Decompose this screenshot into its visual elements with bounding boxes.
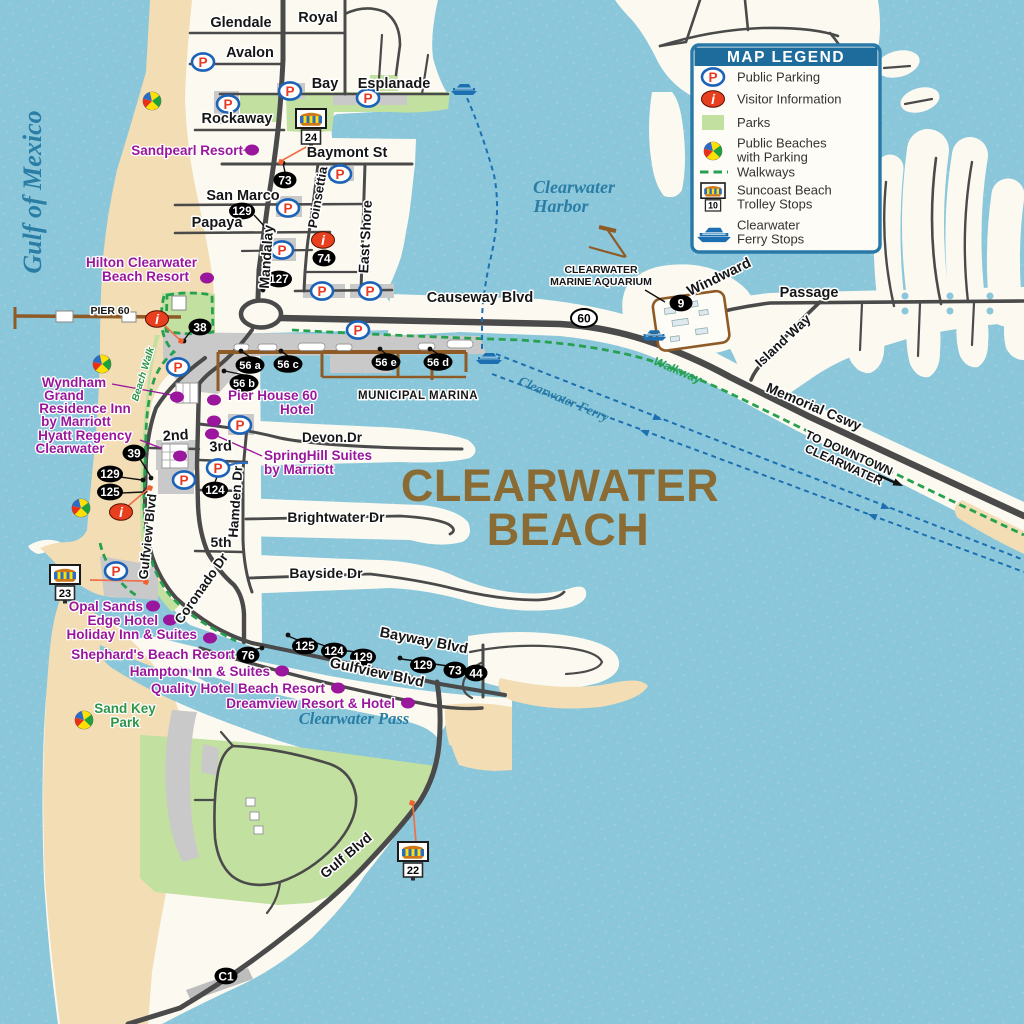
svg-text:Edge Hotel: Edge Hotel bbox=[87, 613, 158, 628]
svg-text:3rd: 3rd bbox=[209, 438, 233, 456]
svg-text:38: 38 bbox=[193, 320, 207, 334]
svg-text:Rockaway: Rockaway bbox=[202, 111, 273, 127]
svg-text:56 e: 56 e bbox=[375, 357, 396, 369]
svg-text:Public Parking: Public Parking bbox=[737, 70, 820, 85]
svg-text:125: 125 bbox=[100, 487, 120, 499]
svg-text:129: 129 bbox=[100, 469, 119, 481]
svg-text:10: 10 bbox=[708, 201, 718, 211]
svg-text:22: 22 bbox=[407, 865, 419, 877]
svg-text:Sandpearl Resort: Sandpearl Resort bbox=[131, 143, 243, 158]
svg-text:125: 125 bbox=[295, 641, 315, 653]
svg-text:Suncoast Beach: Suncoast Beach bbox=[737, 183, 832, 198]
svg-text:by Marriott: by Marriott bbox=[41, 414, 111, 429]
svg-text:Papaya: Papaya bbox=[192, 215, 244, 231]
svg-text:76: 76 bbox=[241, 648, 255, 662]
svg-text:Clearwater Pass: Clearwater Pass bbox=[299, 709, 409, 728]
svg-text:Trolley Stops: Trolley Stops bbox=[737, 197, 813, 212]
svg-text:Walkways: Walkways bbox=[737, 165, 796, 180]
svg-text:Royal: Royal bbox=[298, 10, 338, 26]
svg-text:BEACH: BEACH bbox=[487, 504, 650, 555]
svg-text:Harbor: Harbor bbox=[532, 196, 589, 216]
svg-text:MARINE AQUARIUM: MARINE AQUARIUM bbox=[550, 276, 652, 288]
svg-text:Public Beaches: Public Beaches bbox=[737, 136, 827, 151]
svg-text:44: 44 bbox=[469, 666, 483, 680]
svg-text:2nd: 2nd bbox=[162, 427, 189, 445]
svg-text:Ferry Stops: Ferry Stops bbox=[737, 232, 805, 247]
svg-text:San Marco: San Marco bbox=[206, 188, 279, 204]
svg-text:60: 60 bbox=[577, 311, 591, 325]
svg-text:73: 73 bbox=[448, 663, 462, 677]
svg-text:Hilton Clearwater: Hilton Clearwater bbox=[86, 255, 198, 270]
svg-text:Causeway Blvd: Causeway Blvd bbox=[427, 290, 533, 306]
svg-text:Baymont St: Baymont St bbox=[307, 145, 388, 161]
svg-text:PIER 60: PIER 60 bbox=[90, 305, 129, 317]
svg-text:56 c: 56 c bbox=[277, 359, 298, 371]
svg-text:Parks: Parks bbox=[737, 115, 771, 130]
svg-text:Clearwater: Clearwater bbox=[35, 441, 105, 456]
svg-text:Brightwater Dr: Brightwater Dr bbox=[287, 509, 385, 525]
svg-text:Dreamview Resort & Hotel: Dreamview Resort & Hotel bbox=[226, 696, 395, 711]
svg-text:Shephard's Beach Resort: Shephard's Beach Resort bbox=[71, 647, 235, 662]
svg-text:24: 24 bbox=[305, 132, 318, 144]
svg-text:with Parking: with Parking bbox=[736, 150, 808, 165]
svg-text:Bayside Dr: Bayside Dr bbox=[289, 565, 363, 581]
svg-text:Holiday Inn & Suites: Holiday Inn & Suites bbox=[66, 627, 197, 642]
svg-text:39: 39 bbox=[127, 446, 141, 460]
svg-text:73: 73 bbox=[278, 173, 292, 187]
svg-text:Hampton Inn & Suites: Hampton Inn & Suites bbox=[130, 664, 270, 679]
svg-text:Beach Resort: Beach Resort bbox=[102, 269, 190, 284]
svg-text:SpringHill Suites: SpringHill Suites bbox=[264, 448, 372, 463]
svg-text:Esplanade: Esplanade bbox=[358, 76, 431, 92]
svg-text:MAP LEGEND: MAP LEGEND bbox=[727, 49, 845, 66]
svg-text:Glendale: Glendale bbox=[210, 15, 271, 31]
svg-text:Devon.Dr: Devon.Dr bbox=[302, 430, 363, 445]
svg-text:56 a: 56 a bbox=[239, 360, 261, 372]
svg-text:74: 74 bbox=[317, 251, 331, 265]
svg-text:9: 9 bbox=[678, 296, 685, 310]
svg-text:Clearwater: Clearwater bbox=[737, 218, 801, 233]
svg-text:Passage: Passage bbox=[780, 285, 839, 301]
svg-text:56 d: 56 d bbox=[427, 357, 449, 369]
svg-text:Bay: Bay bbox=[312, 76, 339, 92]
svg-text:129: 129 bbox=[413, 660, 432, 672]
svg-text:MUNICIPAL MARINA: MUNICIPAL MARINA bbox=[358, 390, 478, 402]
svg-text:124: 124 bbox=[205, 485, 225, 497]
svg-text:Sand Key: Sand Key bbox=[94, 701, 156, 716]
svg-text:Pier House 60: Pier House 60 bbox=[228, 388, 317, 403]
svg-text:Gulf of Mexico: Gulf of Mexico bbox=[18, 110, 47, 273]
svg-text:C1: C1 bbox=[218, 969, 234, 983]
svg-text:Park: Park bbox=[110, 715, 140, 730]
svg-text:Quality Hotel Beach Resort: Quality Hotel Beach Resort bbox=[151, 681, 326, 696]
svg-text:Hotel: Hotel bbox=[280, 402, 314, 417]
svg-text:Clearwater: Clearwater bbox=[533, 177, 616, 197]
svg-text:Opal Sands: Opal Sands bbox=[69, 599, 143, 614]
svg-text:Visitor Information: Visitor Information bbox=[737, 92, 842, 107]
svg-text:CLEARWATER: CLEARWATER bbox=[564, 264, 638, 276]
svg-text:Avalon: Avalon bbox=[226, 45, 274, 61]
svg-text:by Marriott: by Marriott bbox=[264, 462, 334, 477]
